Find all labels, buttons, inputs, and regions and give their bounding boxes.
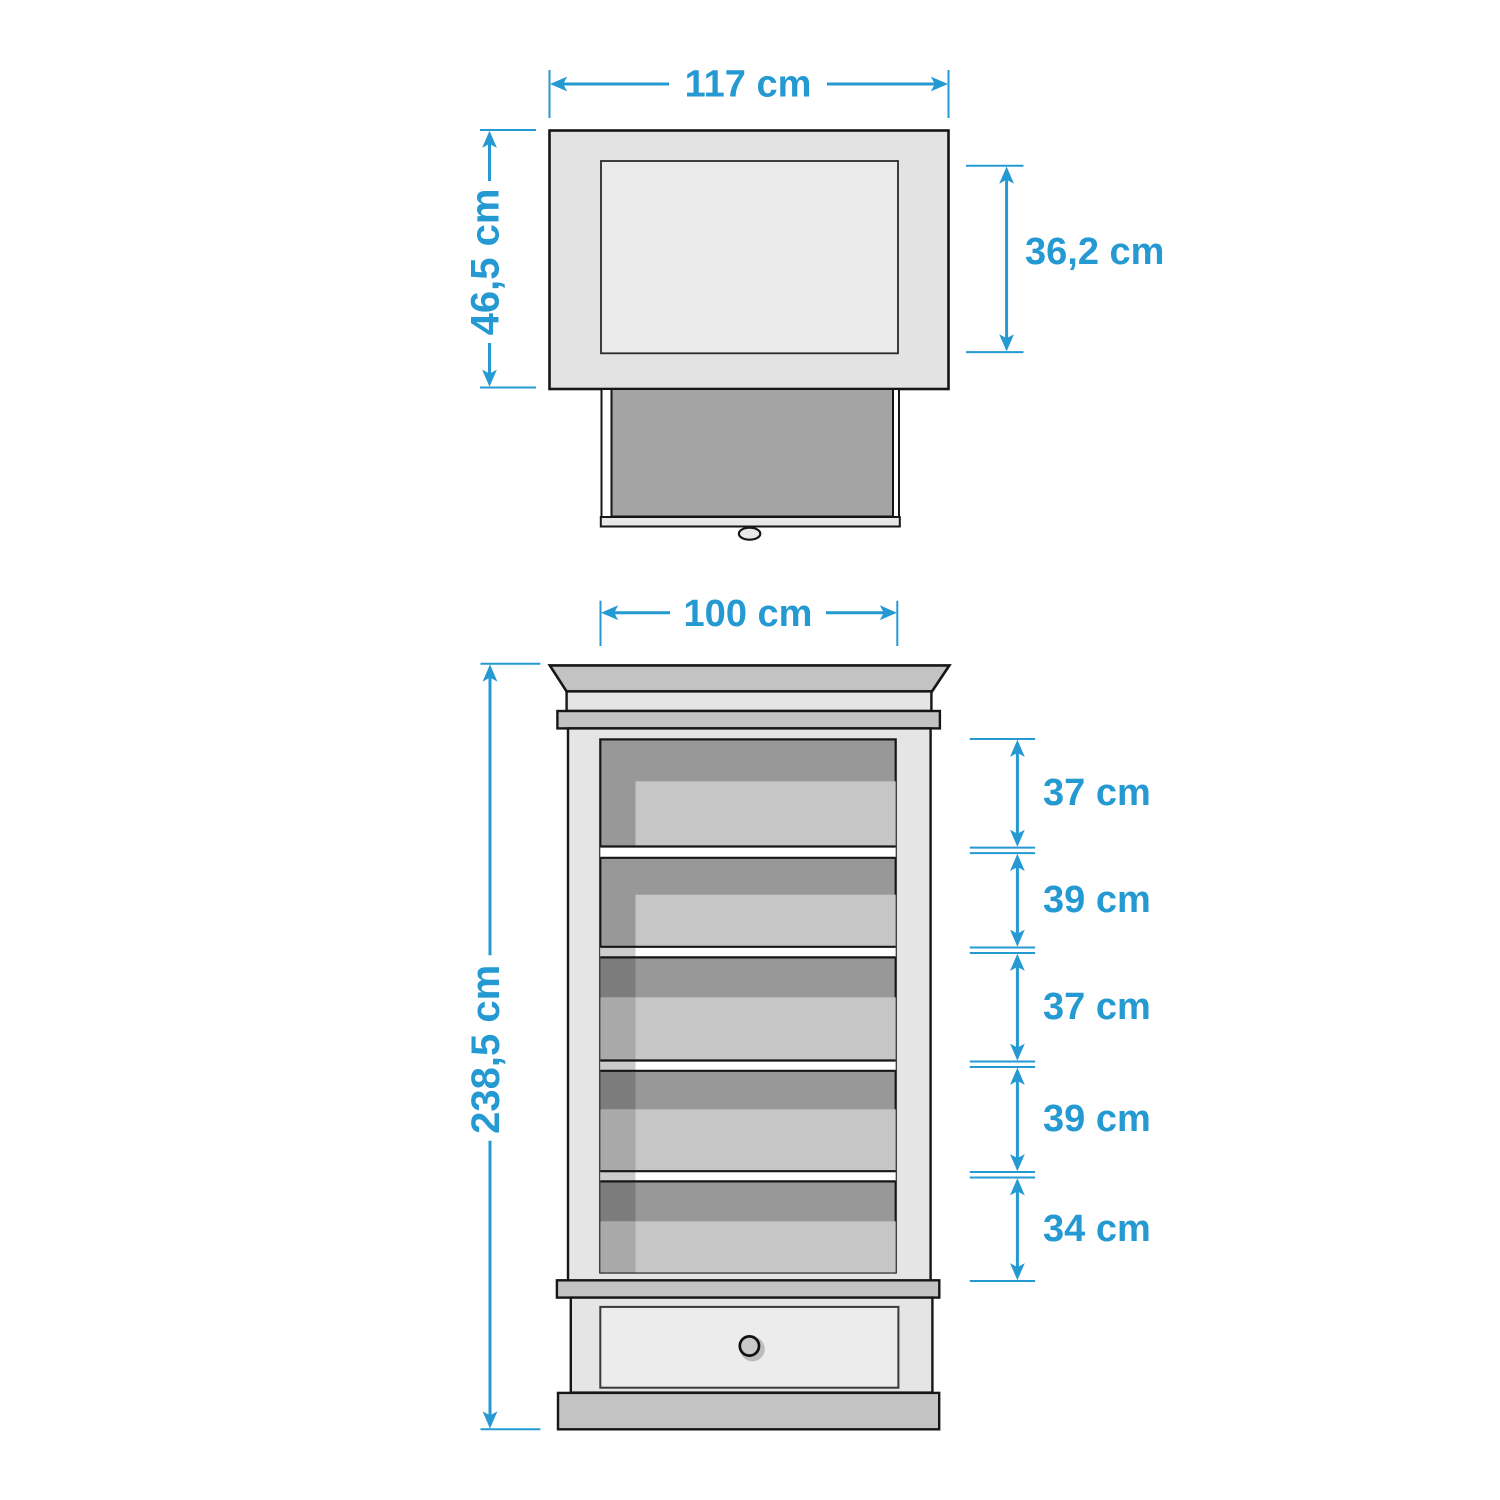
svg-text:37 cm: 37 cm — [1043, 986, 1151, 1028]
svg-text:117 cm: 117 cm — [685, 64, 812, 106]
svg-text:37 cm: 37 cm — [1043, 772, 1151, 814]
svg-text:36,2 cm: 36,2 cm — [1025, 231, 1164, 273]
svg-text:238,5 cm: 238,5 cm — [464, 965, 508, 1134]
svg-text:39 cm: 39 cm — [1043, 1098, 1151, 1140]
svg-text:39 cm: 39 cm — [1043, 879, 1151, 921]
svg-text:46,5 cm: 46,5 cm — [464, 189, 508, 336]
svg-text:100 cm: 100 cm — [684, 593, 813, 635]
svg-text:34 cm: 34 cm — [1043, 1208, 1151, 1250]
